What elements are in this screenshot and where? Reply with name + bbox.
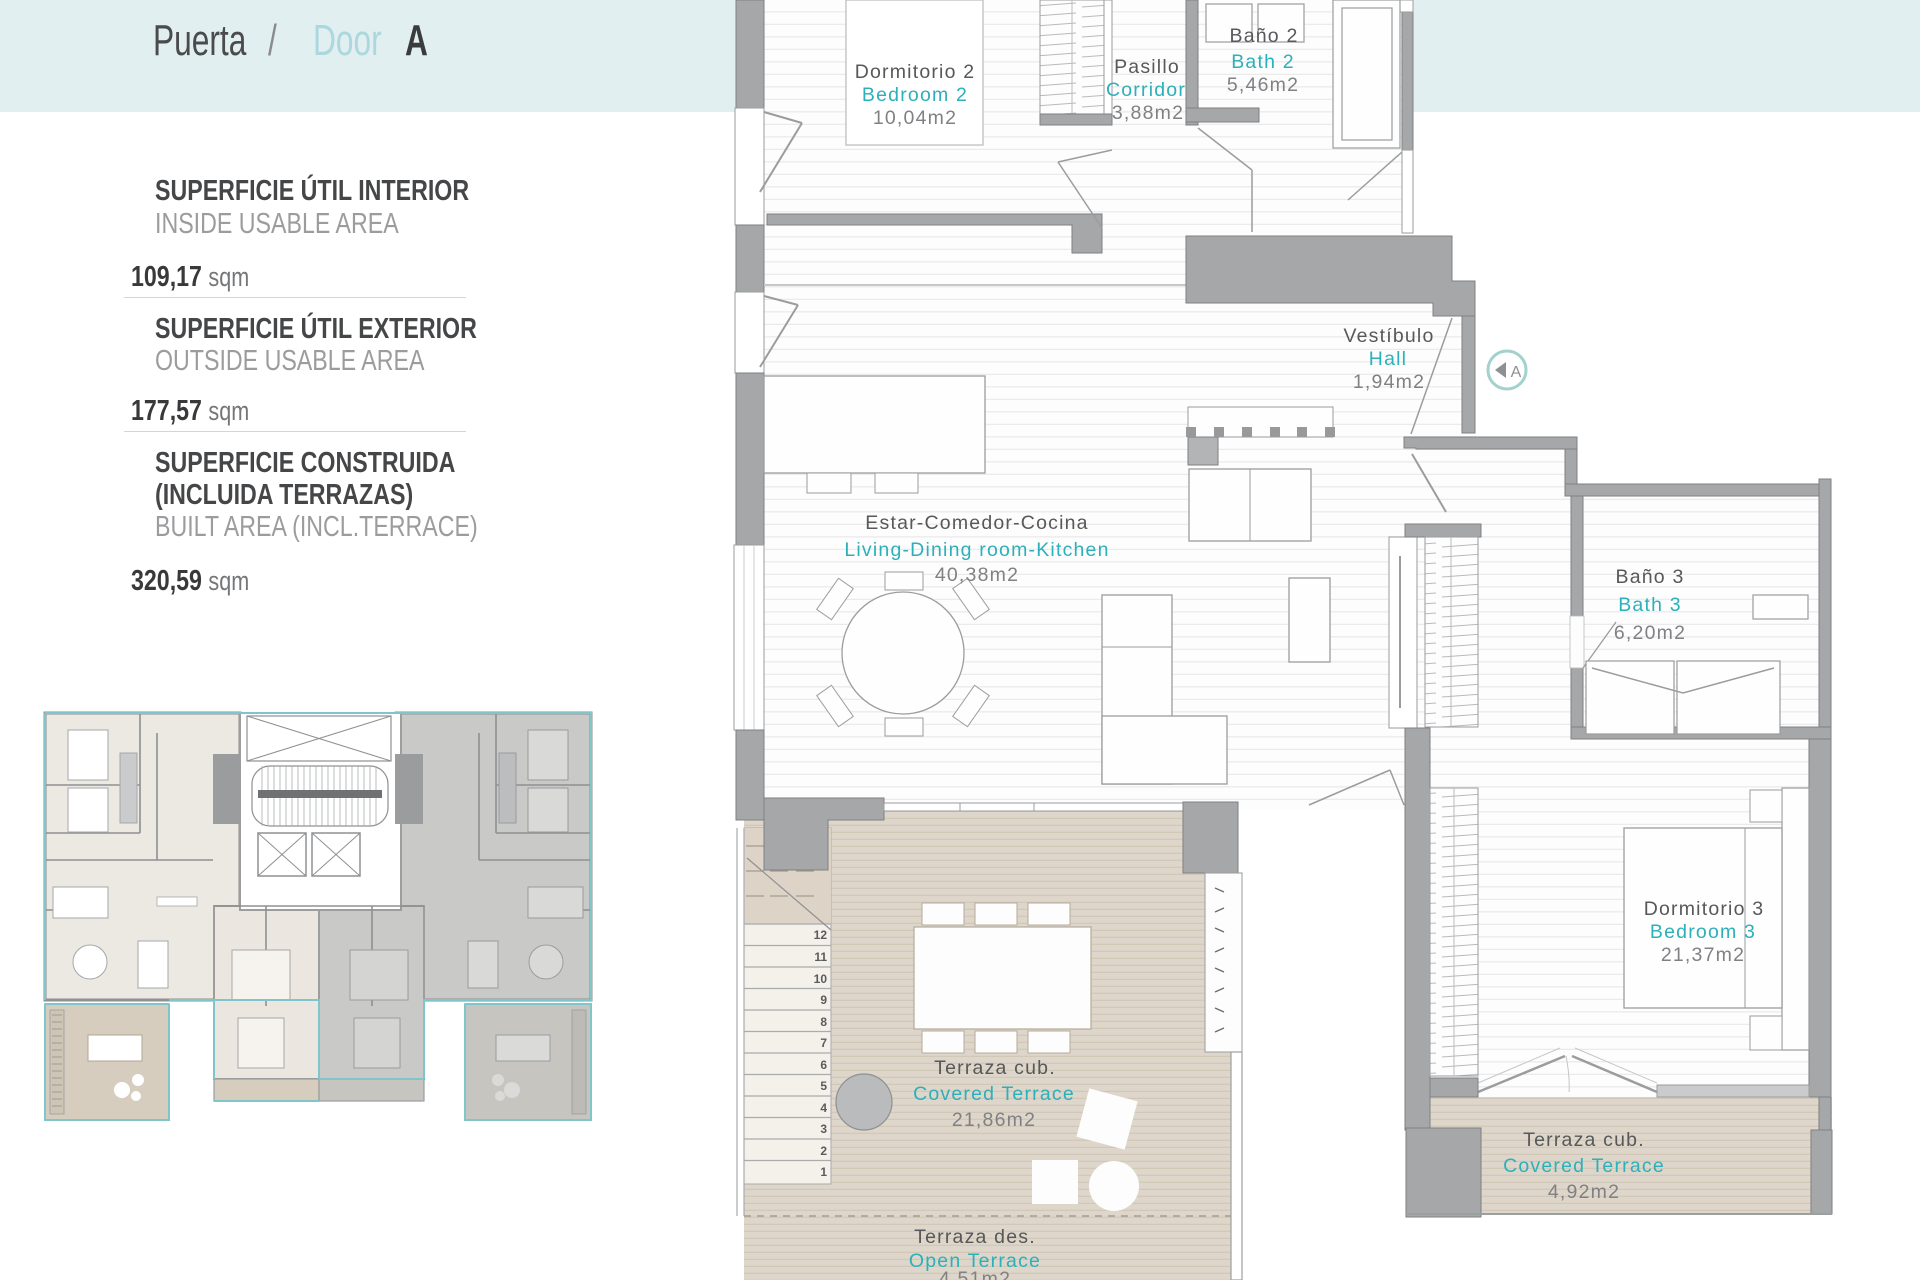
svg-text:Dormitorio 2: Dormitorio 2 xyxy=(855,61,976,83)
svg-text:6: 6 xyxy=(820,1058,827,1072)
svg-text:1: 1 xyxy=(820,1165,827,1179)
svg-text:Baño 2: Baño 2 xyxy=(1229,25,1298,47)
svg-text:10: 10 xyxy=(814,972,828,986)
svg-text:5: 5 xyxy=(820,1079,827,1093)
svg-text:21,86m2: 21,86m2 xyxy=(952,1109,1036,1131)
svg-text:Bath 3: Bath 3 xyxy=(1618,594,1682,616)
svg-text:Estar-Comedor-Cocina: Estar-Comedor-Cocina xyxy=(865,512,1088,534)
svg-text:40,38m2: 40,38m2 xyxy=(935,564,1019,586)
svg-text:Hall: Hall xyxy=(1369,348,1407,370)
svg-text:Bedroom 3: Bedroom 3 xyxy=(1650,921,1756,943)
svg-text:4,51m2: 4,51m2 xyxy=(939,1268,1011,1280)
svg-text:Baño 3: Baño 3 xyxy=(1615,566,1684,588)
svg-text:8: 8 xyxy=(820,1015,827,1029)
svg-text:Bath 2: Bath 2 xyxy=(1231,51,1295,73)
svg-text:12: 12 xyxy=(814,928,828,942)
svg-text:Corridor: Corridor xyxy=(1106,79,1186,101)
svg-text:Dormitorio 3: Dormitorio 3 xyxy=(1644,898,1765,920)
svg-text:Bedroom 2: Bedroom 2 xyxy=(862,84,968,106)
svg-text:Terraza des.: Terraza des. xyxy=(914,1226,1036,1248)
svg-text:3,88m2: 3,88m2 xyxy=(1112,102,1184,124)
svg-text:Living-Dining room-Kitchen: Living-Dining room-Kitchen xyxy=(844,539,1109,561)
svg-text:9: 9 xyxy=(820,993,827,1007)
svg-text:Vestíbulo: Vestíbulo xyxy=(1343,325,1434,347)
svg-text:Covered Terrace: Covered Terrace xyxy=(913,1083,1075,1105)
svg-text:A: A xyxy=(1511,364,1522,381)
svg-text:6,20m2: 6,20m2 xyxy=(1614,622,1686,644)
svg-text:10,04m2: 10,04m2 xyxy=(873,107,957,129)
svg-text:1,94m2: 1,94m2 xyxy=(1353,371,1425,393)
svg-text:5,46m2: 5,46m2 xyxy=(1227,74,1299,96)
svg-text:4,92m2: 4,92m2 xyxy=(1548,1181,1620,1203)
svg-text:Covered Terrace: Covered Terrace xyxy=(1503,1155,1665,1177)
svg-text:11: 11 xyxy=(814,950,827,964)
svg-text:7: 7 xyxy=(820,1036,827,1050)
svg-text:Pasillo: Pasillo xyxy=(1114,56,1180,78)
svg-text:3: 3 xyxy=(820,1122,827,1136)
svg-text:Terraza cub.: Terraza cub. xyxy=(1523,1129,1645,1151)
svg-text:Terraza cub.: Terraza cub. xyxy=(934,1057,1056,1079)
svg-text:21,37m2: 21,37m2 xyxy=(1661,944,1745,966)
svg-text:4: 4 xyxy=(820,1101,827,1115)
svg-text:2: 2 xyxy=(820,1144,827,1158)
